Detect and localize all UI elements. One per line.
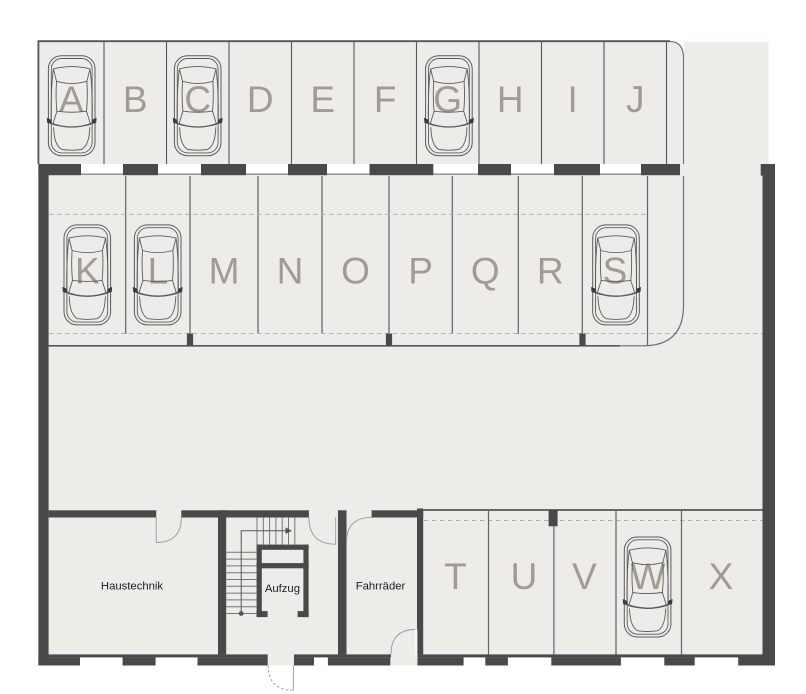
svg-text:G: G: [433, 79, 462, 120]
svg-text:W: W: [631, 556, 666, 597]
svg-text:F: F: [374, 79, 397, 120]
svg-text:X: X: [709, 556, 734, 597]
svg-text:L: L: [148, 250, 169, 291]
svg-text:D: D: [247, 79, 274, 120]
svg-text:R: R: [537, 250, 564, 291]
svg-text:V: V: [572, 556, 597, 597]
svg-text:I: I: [568, 79, 578, 120]
svg-text:H: H: [497, 79, 524, 120]
svg-text:K: K: [75, 250, 100, 291]
svg-text:P: P: [408, 250, 433, 291]
svg-text:M: M: [209, 250, 240, 291]
svg-text:Q: Q: [471, 250, 500, 291]
svg-text:C: C: [184, 79, 211, 120]
svg-text:S: S: [603, 250, 628, 291]
svg-text:B: B: [123, 79, 148, 120]
svg-text:A: A: [59, 79, 84, 120]
svg-text:T: T: [444, 556, 467, 597]
svg-text:O: O: [341, 250, 370, 291]
svg-text:Haustechnik: Haustechnik: [101, 581, 164, 593]
svg-text:Aufzug: Aufzug: [265, 583, 300, 595]
svg-text:U: U: [511, 556, 538, 597]
svg-text:N: N: [277, 250, 304, 291]
svg-text:Fahrräder: Fahrräder: [356, 580, 406, 592]
svg-text:J: J: [626, 79, 645, 120]
svg-text:E: E: [310, 79, 335, 120]
